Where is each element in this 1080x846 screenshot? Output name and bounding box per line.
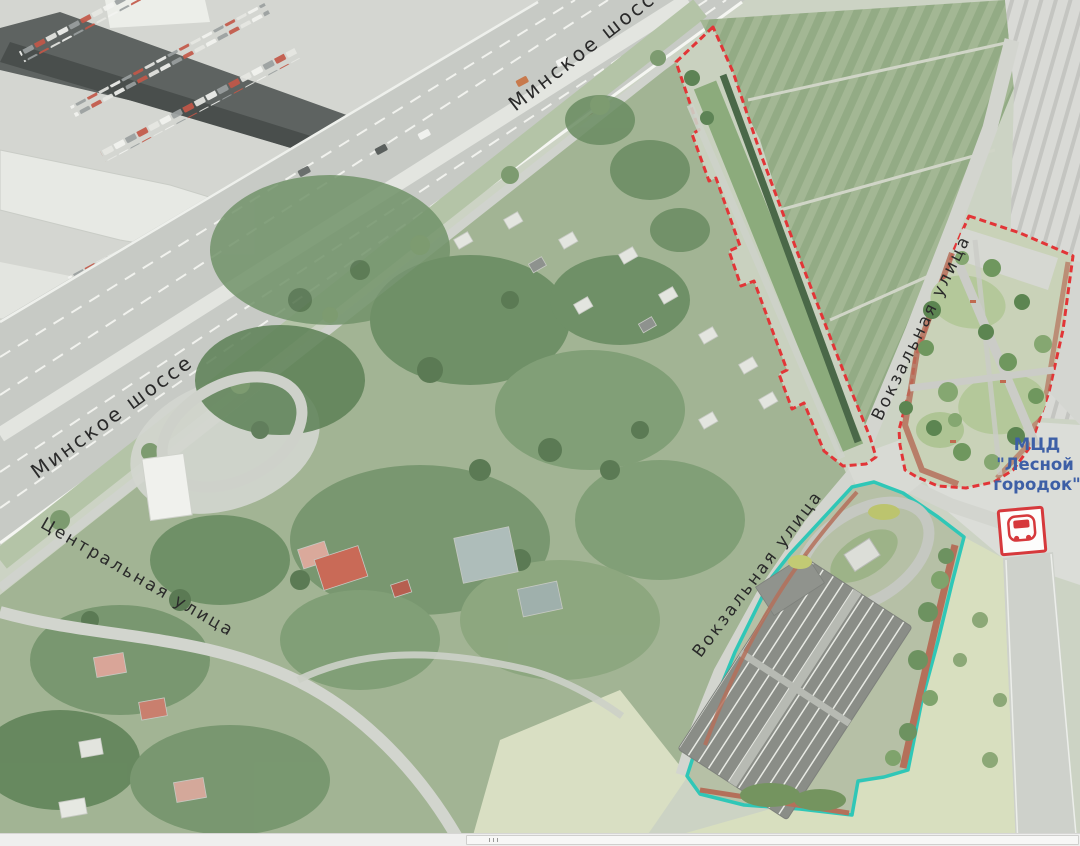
svg-text:"Лесной: "Лесной [996, 455, 1074, 474]
scrollbar-thumb[interactable] [466, 835, 1079, 845]
svg-text:городок": городок" [993, 475, 1080, 494]
scrollbar-grip [489, 838, 501, 842]
svg-text:МЦД: МЦД [1014, 435, 1060, 454]
bus-station-building [142, 453, 192, 520]
map-canvas[interactable]: Минское шоссе Минское шоссе Центральная … [0, 0, 1080, 846]
mcd-train-station-icon [998, 507, 1046, 555]
horizontal-scrollbar[interactable] [0, 833, 1080, 846]
